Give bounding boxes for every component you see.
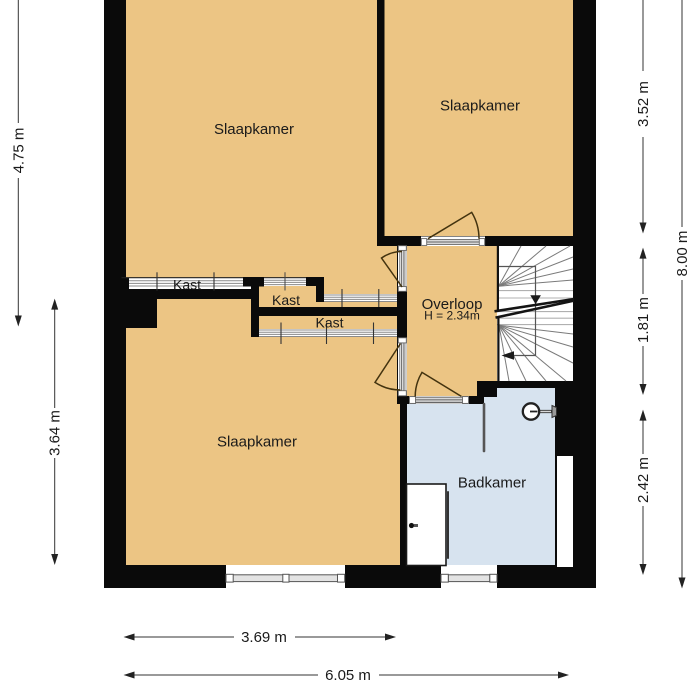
svg-text:H = 2.34m: H = 2.34m xyxy=(424,309,480,323)
svg-text:2.42 m: 2.42 m xyxy=(635,457,652,503)
svg-text:Kast: Kast xyxy=(173,277,201,293)
svg-text:Slaapkamer: Slaapkamer xyxy=(217,434,297,451)
svg-text:Kast: Kast xyxy=(315,315,343,331)
svg-text:1.81 m: 1.81 m xyxy=(635,297,652,343)
svg-text:Slaapkamer: Slaapkamer xyxy=(440,98,520,115)
svg-text:Badkamer: Badkamer xyxy=(458,475,526,492)
svg-text:8.00 m: 8.00 m xyxy=(674,231,691,277)
svg-text:3.69 m: 3.69 m xyxy=(241,629,287,646)
svg-text:6.05 m: 6.05 m xyxy=(325,667,371,684)
svg-text:3.52 m: 3.52 m xyxy=(635,81,652,127)
svg-text:3.64 m: 3.64 m xyxy=(47,410,64,456)
svg-text:Slaapkamer: Slaapkamer xyxy=(214,121,294,138)
svg-text:4.75 m: 4.75 m xyxy=(10,128,27,174)
svg-text:Kast: Kast xyxy=(272,292,300,308)
